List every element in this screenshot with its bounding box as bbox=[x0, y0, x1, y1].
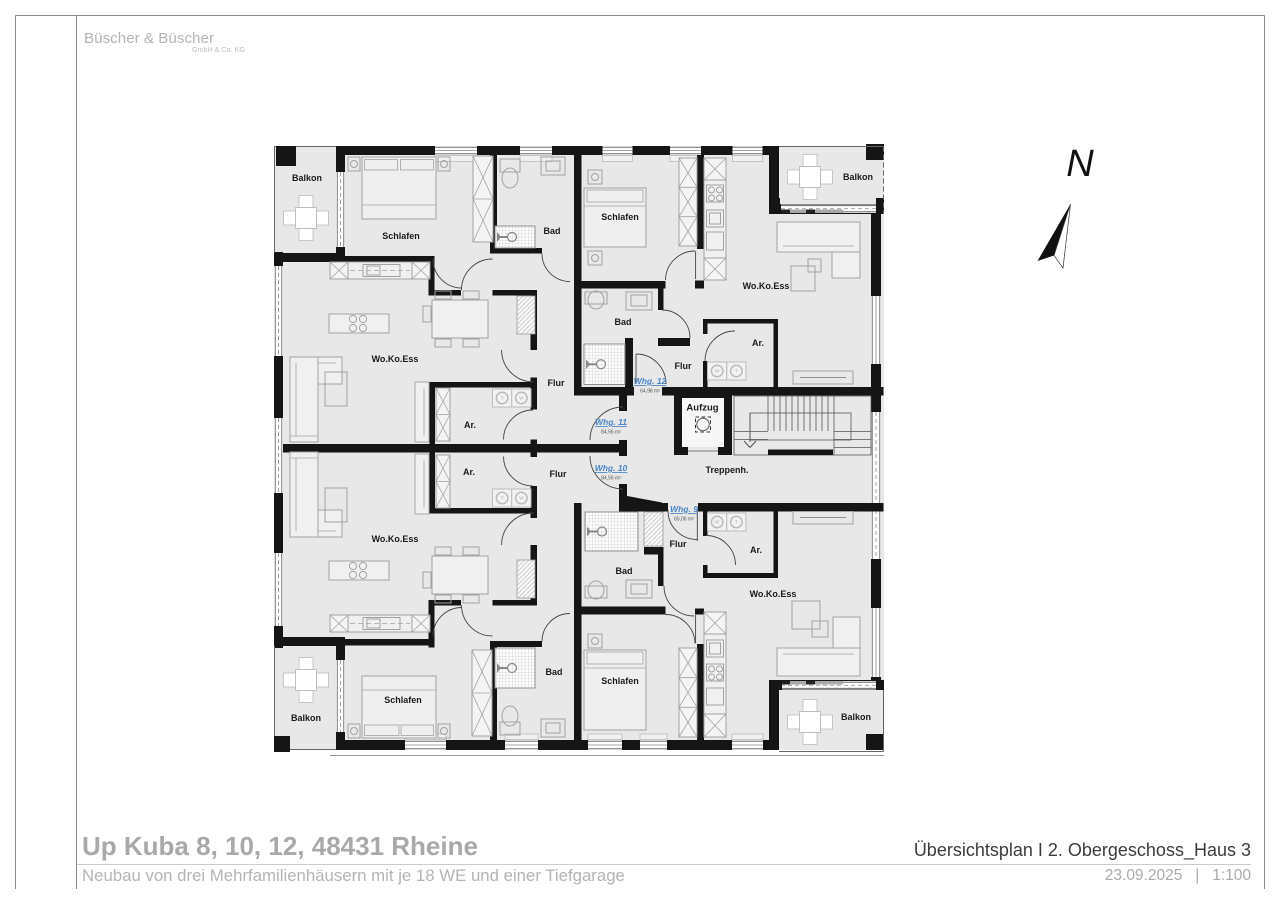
svg-text:T: T bbox=[735, 520, 738, 525]
svg-text:Balkon: Balkon bbox=[843, 172, 873, 182]
svg-text:T: T bbox=[501, 396, 504, 401]
svg-text:23.09.2025 | 1:100: 23.09.2025 | 1:100 bbox=[1105, 867, 1252, 884]
svg-text:Whg. 11: Whg. 11 bbox=[595, 417, 627, 427]
svg-text:Whg. 9: Whg. 9 bbox=[670, 504, 698, 514]
svg-text:Schlafen: Schlafen bbox=[384, 695, 422, 705]
svg-text:Balkon: Balkon bbox=[291, 713, 321, 723]
svg-text:Whg. 12: Whg. 12 bbox=[634, 376, 667, 386]
svg-text:Flur: Flur bbox=[675, 361, 692, 371]
svg-text:Schlafen: Schlafen bbox=[601, 676, 639, 686]
svg-text:T: T bbox=[501, 496, 504, 501]
svg-text:Ar.: Ar. bbox=[464, 420, 476, 430]
svg-text:Bad: Bad bbox=[615, 566, 632, 576]
svg-text:Flur: Flur bbox=[548, 378, 565, 388]
svg-text:84,56 m²: 84,56 m² bbox=[601, 476, 621, 482]
svg-text:Neubau von drei Mehrfamilienhä: Neubau von drei Mehrfamilienhäusern mit … bbox=[82, 866, 625, 885]
svg-text:Treppenh.: Treppenh. bbox=[705, 465, 748, 475]
svg-text:Übersichtsplan I 2. Obergescho: Übersichtsplan I 2. Obergeschoss_Haus 3 bbox=[914, 840, 1251, 861]
svg-text:T: T bbox=[735, 369, 738, 374]
svg-text:Bad: Bad bbox=[545, 667, 562, 677]
svg-text:Ar.: Ar. bbox=[752, 338, 764, 348]
svg-text:Schlafen: Schlafen bbox=[382, 231, 420, 241]
svg-text:Bad: Bad bbox=[614, 317, 631, 327]
svg-text:Ar.: Ar. bbox=[463, 467, 475, 477]
svg-text:N: N bbox=[1066, 143, 1094, 185]
svg-text:65,06 m²: 65,06 m² bbox=[674, 517, 694, 523]
svg-text:Flur: Flur bbox=[550, 469, 567, 479]
svg-text:Wo.Ko.Ess: Wo.Ko.Ess bbox=[743, 281, 790, 291]
svg-text:Schlafen: Schlafen bbox=[601, 212, 639, 222]
svg-text:Aufzug: Aufzug bbox=[686, 403, 718, 414]
svg-text:Balkon: Balkon bbox=[292, 173, 322, 183]
svg-text:84,56 m²: 84,56 m² bbox=[601, 430, 621, 436]
svg-text:GmbH & Co. KG: GmbH & Co. KG bbox=[192, 45, 246, 54]
svg-text:Bad: Bad bbox=[543, 226, 560, 236]
svg-text:Wo.Ko.Ess: Wo.Ko.Ess bbox=[372, 354, 419, 364]
svg-text:Ar.: Ar. bbox=[750, 545, 762, 555]
svg-text:Whg. 10: Whg. 10 bbox=[595, 463, 628, 473]
svg-text:Wo.Ko.Ess: Wo.Ko.Ess bbox=[750, 589, 797, 599]
svg-text:64,98 m²: 64,98 m² bbox=[640, 389, 660, 395]
svg-text:Flur: Flur bbox=[670, 539, 687, 549]
svg-text:Wo.Ko.Ess: Wo.Ko.Ess bbox=[372, 534, 419, 544]
svg-text:Balkon: Balkon bbox=[841, 712, 871, 722]
svg-text:Up Kuba 8, 10, 12, 48431 Rhein: Up Kuba 8, 10, 12, 48431 Rheine bbox=[82, 831, 478, 861]
